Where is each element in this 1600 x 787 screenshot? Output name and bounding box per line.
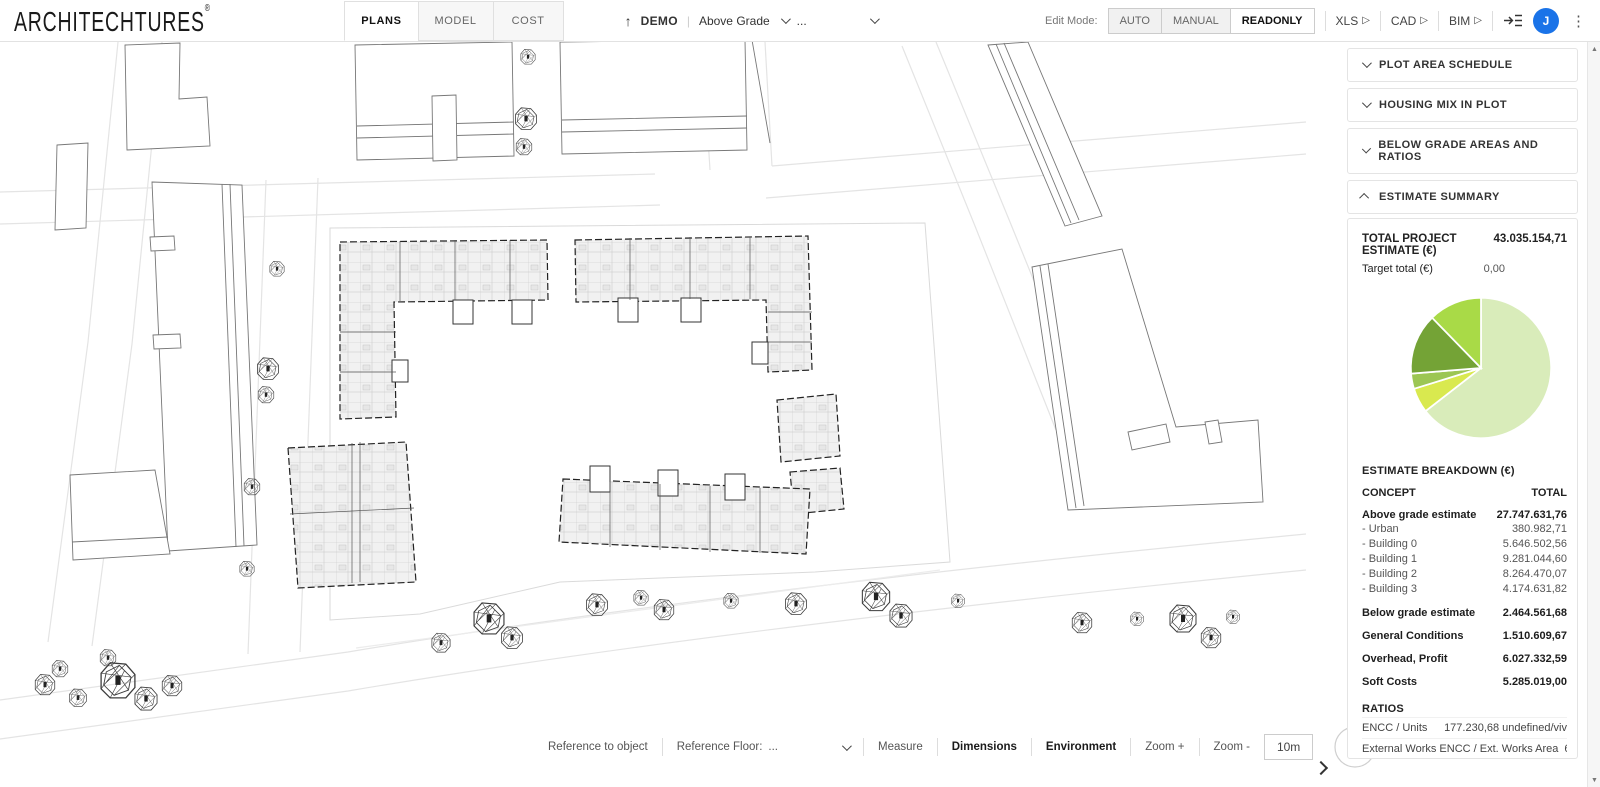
chevron-up-icon [1359,192,1369,202]
reference-to-object-button[interactable]: Reference to object [548,741,648,753]
breakdown-row: - Building 28.264.470,07 [1362,567,1567,582]
divider [1130,738,1131,756]
chevron-down-icon [1362,98,1372,108]
project-controls: ↑ DEMO | Above Grade ... [625,13,877,29]
divider [937,738,938,756]
reference-floor-select[interactable]: Reference Floor: ... [677,741,849,753]
tab-model[interactable]: MODEL [418,1,494,41]
chevron-down-icon[interactable] [870,14,880,24]
more-options-icon[interactable]: ⋮ [1569,12,1588,30]
divider [662,738,663,756]
tab-plans[interactable]: PLANS [344,1,418,41]
stair-cores [392,298,768,500]
main-tabs: PLANS MODEL COST [344,1,562,41]
estimate-pie-chart [1362,279,1567,455]
edit-mode-switch: AUTO MANUAL READONLY [1108,8,1315,34]
divider [1031,738,1032,756]
reference-floor-value: ... [768,741,778,753]
panel-header[interactable]: HOUSING MIX IN PLOT [1348,89,1577,121]
environment-toggle[interactable]: Environment [1046,741,1116,753]
panel-plot-area-schedule: PLOT AREA SCHEDULE [1347,48,1578,82]
upload-arrow-icon[interactable]: ↑ [625,13,632,29]
export-cad-button[interactable]: CAD▷ [1391,14,1428,28]
site-plan-canvas[interactable] [0,42,1306,787]
zoom-out-button[interactable]: Zoom - [1214,741,1250,753]
total-project-estimate-row: TOTAL PROJECT ESTIMATE (€) 43.035.154,71 [1362,233,1567,257]
panel-housing-mix: HOUSING MIX IN PLOT [1347,88,1578,122]
breakdown-row: - Building 34.174.631,82 [1362,582,1567,597]
divider [1325,11,1326,31]
divider: | [687,14,690,28]
breakdown-row: Above grade estimate27.747.631,76 [1362,508,1567,522]
top-bar: ARCHITECHTURES® PLANS MODEL COST ↑ DEMO … [0,0,1600,42]
run-icon: ▷ [1420,15,1428,26]
breadcrumb-ellipsis[interactable]: ... [797,14,807,28]
run-icon: ▷ [1474,15,1482,26]
breakdown-row: Overhead, Profit6.027.332,59 [1362,652,1567,666]
project-buildings [288,236,844,588]
chevron-down-icon [1362,58,1372,68]
panel-header[interactable]: BELOW GRADE AREAS AND RATIOS [1348,129,1577,173]
chevron-down-icon [1362,144,1371,153]
ratio-row: External Works ENCC / Ext. Works Area65,… [1362,738,1567,759]
divider [1438,11,1439,31]
level-selector[interactable]: Above Grade [699,14,770,28]
breakdown-row: - Urban380.982,71 [1362,522,1567,537]
tab-cost[interactable]: COST [493,1,564,41]
breakdown-row: Below grade estimate2.464.561,68 [1362,606,1567,620]
dimensions-toggle[interactable]: Dimensions [952,741,1017,753]
scale-button[interactable]: 10m [1264,734,1313,760]
project-name[interactable]: DEMO [641,14,678,28]
divider [1380,11,1381,31]
ratios-title: RATIOS [1362,703,1567,715]
bottom-toolbar: Reference to object Reference Floor: ...… [548,725,1408,769]
page-scrollbar[interactable]: ▲ ▼ [1587,42,1600,787]
sidebar: PLOT AREA SCHEDULE HOUSING MIX IN PLOT B… [1325,42,1587,787]
app-root: ARCHITECHTURES® PLANS MODEL COST ↑ DEMO … [0,0,1600,787]
panel-estimate-summary: ESTIMATE SUMMARY [1347,180,1578,214]
scroll-down-arrow[interactable]: ▼ [1588,773,1600,787]
project-plot [288,223,950,620]
panel-header[interactable]: ESTIMATE SUMMARY [1348,181,1577,213]
export-xls-button[interactable]: XLS▷ [1336,14,1370,28]
edit-mode-label: Edit Mode: [1045,15,1098,27]
header-right-controls: Edit Mode: AUTO MANUAL READONLY XLS▷ CAD… [1045,8,1600,34]
site-plan-drawing [0,42,1306,787]
registered-mark-icon: ® [205,2,211,13]
breakdown-header: CONCEPT TOTAL [1362,487,1567,499]
edit-mode-manual[interactable]: MANUAL [1162,9,1231,33]
target-value: 0,00 [1484,263,1505,275]
panel-header[interactable]: PLOT AREA SCHEDULE [1348,49,1577,81]
breakdown-row: General Conditions1.510.609,67 [1362,629,1567,643]
chevron-down-icon[interactable] [781,14,791,24]
breakdown-title: ESTIMATE BREAKDOWN (€) [1362,465,1567,477]
run-icon: ▷ [1362,15,1370,26]
target-total-row: Target total (€) 0,00 [1362,263,1567,275]
divider [863,738,864,756]
estimate-summary-content: TOTAL PROJECT ESTIMATE (€) 43.035.154,71… [1347,218,1578,759]
ratio-row: ENCC / Units177.230,68 undefined/viv [1362,717,1567,738]
app-logo: ARCHITECHTURES® [14,2,211,39]
open-side-panel-icon[interactable] [1503,13,1523,28]
estimate-pie [1408,295,1554,441]
zoom-in-button[interactable]: Zoom + [1145,741,1184,753]
edit-mode-readonly[interactable]: READONLY [1231,9,1314,33]
measure-button[interactable]: Measure [878,741,923,753]
scroll-up-arrow[interactable]: ▲ [1588,42,1600,56]
export-bim-button[interactable]: BIM▷ [1449,14,1482,28]
breakdown-row: - Building 05.646.502,56 [1362,537,1567,552]
total-value: 43.035.154,71 [1493,233,1567,257]
divider [1492,11,1493,31]
edit-mode-auto[interactable]: AUTO [1109,9,1162,33]
breakdown-row: - Building 19.281.044,60 [1362,552,1567,567]
user-avatar[interactable]: J [1533,8,1559,34]
chevron-down-icon [842,741,852,751]
panel-below-grade: BELOW GRADE AREAS AND RATIOS [1347,128,1578,174]
divider [1199,738,1200,756]
breakdown-row: Soft Costs5.285.019,00 [1362,675,1567,689]
